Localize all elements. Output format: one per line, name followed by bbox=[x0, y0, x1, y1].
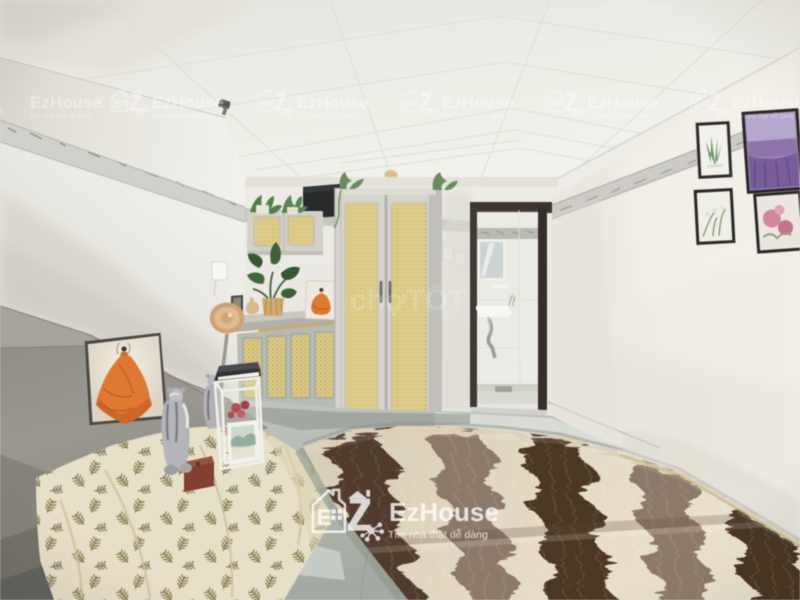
svg-text:EzHouse: EzHouse bbox=[389, 497, 499, 527]
svg-text:Tìm nhà thật dễ dàng: Tìm nhà thật dễ dàng bbox=[30, 111, 92, 120]
svg-text:EzHouse: EzHouse bbox=[442, 93, 514, 112]
svg-text:EzHouse: EzHouse bbox=[30, 93, 102, 112]
svg-text:Tìm nhà thật dễ dàng: Tìm nhà thật dễ dàng bbox=[442, 111, 504, 120]
svg-text:Tìm nhà thật dễ dàng: Tìm nhà thật dễ dàng bbox=[152, 111, 214, 120]
svg-text:chợTỐT: chợTỐT bbox=[350, 283, 466, 317]
svg-text:Tìm nhà thật dễ dàng: Tìm nhà thật dễ dàng bbox=[732, 111, 794, 120]
svg-text:Tìm nhà thật dễ dàng: Tìm nhà thật dễ dàng bbox=[388, 528, 488, 541]
svg-text:Tìm nhà thật dễ dàng: Tìm nhà thật dễ dàng bbox=[297, 111, 359, 120]
svg-text:EzHouse: EzHouse bbox=[587, 93, 659, 112]
svg-text:EzHouse: EzHouse bbox=[732, 93, 800, 112]
svg-text:EzHouse: EzHouse bbox=[152, 93, 224, 112]
svg-text:Tìm nhà thật dễ dàng: Tìm nhà thật dễ dàng bbox=[587, 111, 649, 120]
svg-text:EzHouse: EzHouse bbox=[297, 93, 369, 112]
